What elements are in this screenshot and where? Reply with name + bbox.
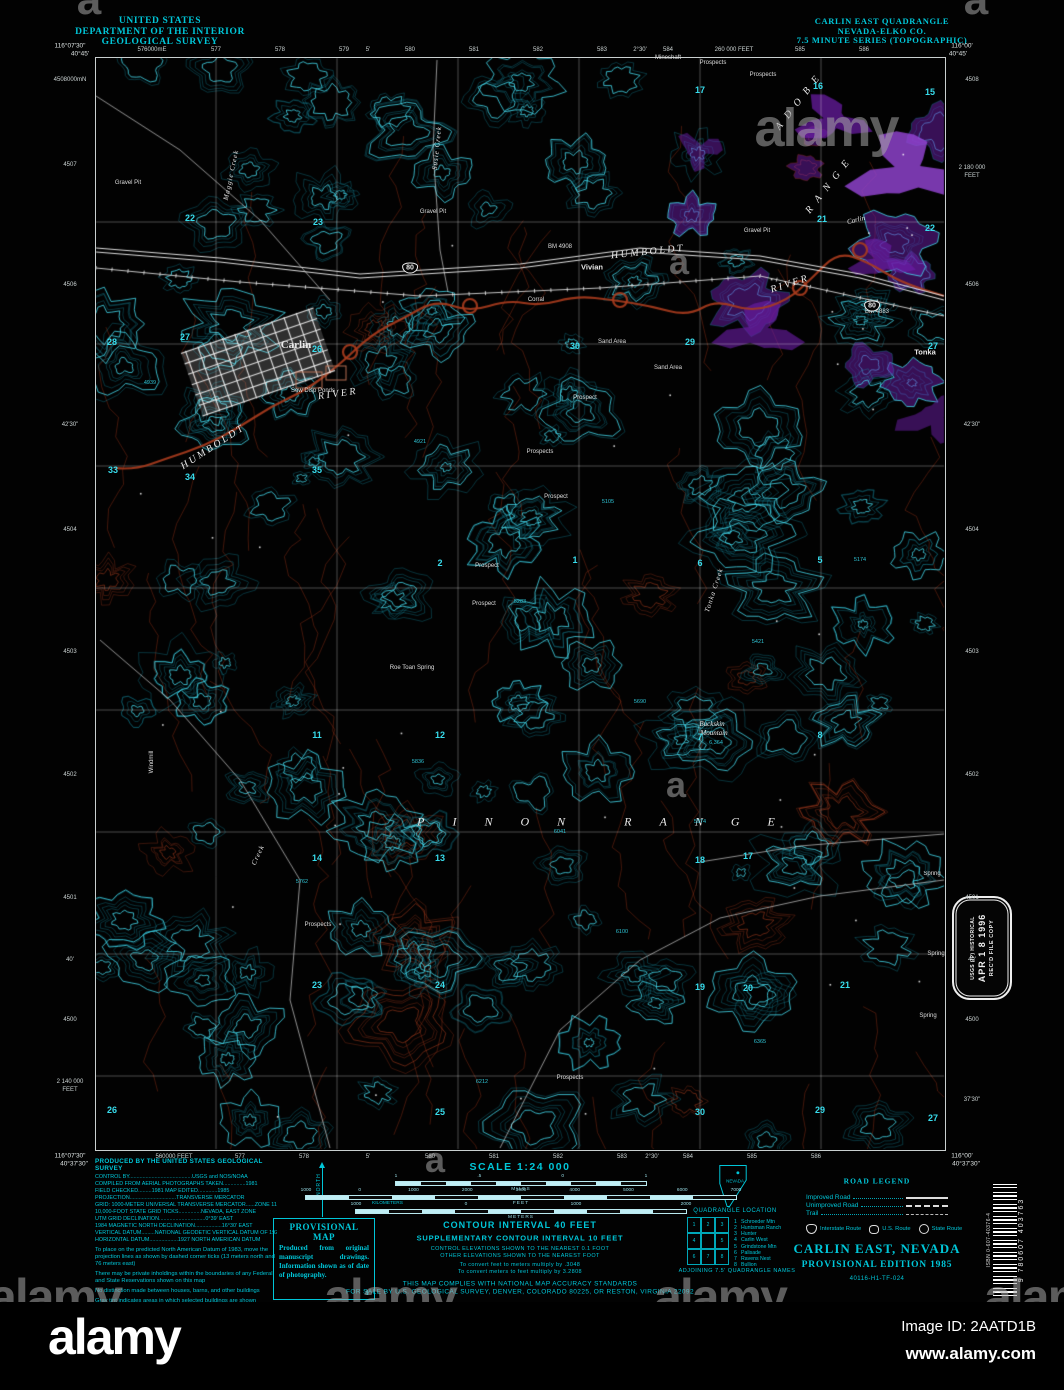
map-label-small: Windmill — [149, 751, 155, 774]
scale-bar-tick: 5000 — [623, 1188, 634, 1193]
edge-tick-left: 4508000mN — [54, 77, 87, 83]
map-label-num: 1 — [572, 555, 577, 565]
map-label-small: Spring — [927, 951, 944, 957]
road-legend-label: Unimproved Road — [806, 1202, 858, 1209]
corner-coordinate: 116°07'30" — [55, 1153, 86, 1160]
map-label-num: 26 — [312, 344, 322, 354]
edge-tick-left: 42'30" — [62, 422, 79, 428]
map-label-num: 29 — [815, 1105, 825, 1115]
map-label-small: Prospects — [305, 922, 332, 928]
map-label-feature: Mountain — [700, 729, 727, 737]
corner-coordinate: 40°45' — [71, 51, 89, 58]
map-label-num: 5 — [817, 555, 822, 565]
edge-tick-bottom: 584 — [683, 1154, 693, 1160]
interstate-route-icon — [806, 1224, 817, 1234]
road-legend-leader — [821, 1213, 903, 1215]
map-label-num: 18 — [695, 855, 705, 865]
scale-bar-tick: 6000 — [677, 1188, 688, 1193]
route-label: Interstate Route — [820, 1226, 861, 1232]
corner-coordinate: 116°07'30" — [55, 43, 86, 50]
edge-tick-left: 4506 — [63, 282, 76, 288]
quadrangle-location-caption: QUADRANGLE LOCATION — [693, 1208, 776, 1214]
road-sample-dashed — [906, 1205, 948, 1207]
header-left-line1: UNITED STATES — [75, 16, 245, 27]
route-item: U.S. Route — [869, 1224, 910, 1234]
map-label-town: Carlin — [281, 339, 312, 351]
map-label-small: Prospect — [544, 494, 568, 500]
map-label-num: 23 — [313, 217, 323, 227]
adjoining-cell: 4 — [687, 1233, 701, 1249]
map-label-small: Sand Area — [598, 339, 626, 345]
edge-tick-left: 40' — [66, 957, 74, 963]
map-label-num: 28 — [107, 337, 117, 347]
production-credits: PRODUCED BY THE UNITED STATES GEOLOGICAL… — [95, 1158, 277, 1305]
edge-tick-left: 4501 — [63, 895, 76, 901]
map-label-elev: 5174 — [854, 557, 866, 563]
scale-bar-tick: 1000 — [301, 1188, 312, 1193]
map-label-elev: 5690 — [634, 699, 646, 705]
north-arrow-label: NORTH — [316, 1173, 322, 1196]
header-right: CARLIN EAST QUADRANGLE NEVADA-ELKO CO. 7… — [797, 17, 968, 46]
kilometers-label: KILOMETERS — [372, 1201, 403, 1206]
map-label-num: 34 — [185, 472, 195, 482]
header-left-line2: DEPARTMENT OF THE INTERIOR — [75, 27, 245, 38]
map-label-num: 11 — [312, 730, 322, 740]
credit-paragraph: No distinction made between houses, barn… — [95, 1288, 277, 1295]
stamp-line1: USGS (IP) HISTORICAL — [970, 916, 976, 979]
edge-tick-top: 5' — [366, 47, 370, 53]
map-label-small: Prospect — [472, 601, 496, 607]
map-label-num: 27 — [180, 332, 190, 342]
corner-coordinate: 116°00' — [951, 43, 972, 50]
edge-tick-bottom: 582 — [553, 1154, 563, 1160]
adjoining-cell: 3 — [715, 1217, 729, 1233]
edge-tick-bottom: 560000 FEET — [155, 1154, 192, 1160]
scale-bar-unit: FEET — [513, 1201, 529, 1206]
map-label-num: 23 — [312, 980, 322, 990]
credit-line: HORIZONTAL DATUM...................1927 … — [95, 1237, 277, 1244]
map-code: 40116-H1-TF-024 — [850, 1276, 905, 1282]
alamy-logo: alamy — [48, 1308, 180, 1366]
map-label-elev: 6041 — [554, 829, 566, 835]
edge-tick-left: 2 140 000 — [57, 1079, 84, 1085]
map-label-num: 24 — [435, 980, 445, 990]
route-markers: Interstate RouteU.S. RouteState Route — [806, 1224, 962, 1234]
edge-tick-top: 576000mE — [137, 47, 166, 53]
edge-tick-bottom: 583 — [617, 1154, 627, 1160]
scale-bar-tick: 2000 — [681, 1202, 692, 1207]
nevada-label: NEVADA — [726, 1179, 744, 1184]
edge-tick-right: 4502 — [965, 772, 978, 778]
map-label-num: 26 — [107, 1105, 117, 1115]
map-label-small: Roe Toan Spring — [390, 665, 435, 671]
map-label-elev: 6,364 — [709, 740, 723, 746]
edge-tick-right: 4504 — [965, 527, 978, 533]
map-label-small: Prospects — [557, 1075, 584, 1081]
map-label-num: 20 — [743, 983, 753, 993]
edge-tick-top: 585 — [795, 47, 805, 53]
credit-line: VERTICAL DATUM.........NATIONAL GEODETIC… — [95, 1230, 277, 1237]
map-label-elev: 6212 — [476, 1079, 488, 1085]
map-label-small: Prospects — [750, 72, 777, 78]
map-label-elev: 5421 — [752, 639, 764, 645]
alamy-watermark: a — [425, 1139, 443, 1181]
map-label-elev: 6100 — [616, 929, 628, 935]
provisional-title: PROVISIONAL MAP — [279, 1222, 369, 1242]
road-legend-leader — [861, 1205, 903, 1207]
alamy-watermark: a — [964, 0, 986, 25]
edge-tick-bottom: 577 — [235, 1154, 245, 1160]
credit-paragraph: There may be private inholdings within t… — [95, 1271, 277, 1285]
supplementary-contour: SUPPLEMENTARY CONTOUR INTERVAL 10 FEET — [417, 1234, 624, 1243]
map-label-elev: 5283 — [514, 599, 526, 605]
map-label-num: 2 — [437, 558, 442, 568]
map-label-num: 7 — [697, 732, 702, 742]
edge-tick-top: 584 — [663, 47, 673, 53]
map-label-num: 13 — [435, 853, 445, 863]
adjoining-name: 5Grindstone Mtn — [734, 1244, 781, 1250]
edge-tick-left: 4502 — [63, 772, 76, 778]
scale-bar-unit: METERS — [508, 1215, 534, 1220]
credits-title: PRODUCED BY THE UNITED STATES GEOLOGICAL… — [95, 1158, 277, 1172]
scale-note: To convert feet to meters multiply by .3… — [460, 1262, 581, 1268]
adjoining-cell: 8 — [715, 1249, 729, 1265]
road-legend-label: Trail — [806, 1210, 818, 1217]
road-legend-label: Improved Road — [806, 1194, 850, 1201]
edge-tick-top: 578 — [275, 47, 285, 53]
credits-lines: CONTROL BY..............................… — [95, 1174, 277, 1244]
map-label-range: PINON RANGE — [417, 815, 803, 830]
header-left: UNITED STATES DEPARTMENT OF THE INTERIOR… — [75, 16, 245, 48]
north-arrow-line — [322, 1167, 323, 1217]
road-legend-title: ROAD LEGEND — [844, 1177, 911, 1186]
scale-title: SCALE 1:24 000 — [470, 1161, 571, 1173]
route-item: Interstate Route — [806, 1224, 861, 1234]
map-label-num: 29 — [685, 337, 695, 347]
adjoining-cell — [701, 1233, 715, 1249]
map-label-small: Gravel Pit — [420, 209, 446, 215]
edge-tick-left: FEET — [62, 1087, 77, 1093]
map-label-small: Mineshaft — [655, 55, 681, 61]
isbn-text: ISBN 0-607-40376-4 — [986, 1213, 992, 1268]
corner-coordinate: 116°00' — [951, 1153, 972, 1160]
adjoining-names: 1Schroeder Mtn2Huntsman Ranch3Hunter4Car… — [734, 1219, 781, 1268]
map-label-num: 27 — [928, 1113, 938, 1123]
credit-line: GRID: 1000-METER UNIVERSAL TRANSVERSE ME… — [95, 1202, 277, 1209]
scale-bar-tick: 0 — [358, 1188, 361, 1193]
alamy-watermark: alamy — [754, 97, 897, 159]
map-label-num: 15 — [925, 87, 935, 97]
edge-tick-bottom: 578 — [299, 1154, 309, 1160]
map-label-num: 30 — [695, 1107, 705, 1117]
road-legend-row: Trail — [806, 1210, 948, 1217]
scale-bar-tick: 1000 — [408, 1188, 419, 1193]
map-label-elev: 5974 — [694, 819, 706, 825]
adjoining-cell: 2 — [701, 1217, 715, 1233]
edge-tick-right: 37'30" — [964, 1097, 981, 1103]
map-label-num: 16 — [813, 81, 823, 91]
map-label-num: 17 — [695, 85, 705, 95]
map-label-elev: 5836 — [412, 759, 424, 765]
edge-tick-top: 579 — [339, 47, 349, 53]
edge-tick-right: FEET — [964, 173, 979, 179]
credit-line: CONTROL BY..............................… — [95, 1174, 277, 1181]
map-label-num: 35 — [312, 465, 322, 475]
map-label-num: 30 — [570, 341, 580, 351]
map-label-num: 25 — [435, 1107, 445, 1117]
alamy-watermark: a — [669, 241, 687, 283]
alamy-watermark: a — [666, 764, 684, 806]
adjoining-cell: 7 — [701, 1249, 715, 1265]
map-label-num: 21 — [817, 214, 827, 224]
map-label-small: Spring — [919, 1013, 936, 1019]
credit-line: 10,000-FOOT STATE GRID TICKS............… — [95, 1209, 277, 1216]
scale-note: OTHER ELEVATIONS SHOWN TO THE NEAREST FO… — [440, 1253, 600, 1259]
credit-paragraph: To place on the predicted North American… — [95, 1247, 277, 1269]
road-legend-leader — [853, 1197, 903, 1199]
scale-bar-tick: 7000 — [731, 1188, 742, 1193]
road-legend-row: Unimproved Road — [806, 1202, 948, 1209]
scale-bar-tick: 1 — [395, 1174, 398, 1179]
scale-bar-tick: 3000 — [516, 1188, 527, 1193]
nevada-outline: NEVADA — [714, 1164, 752, 1208]
scale-bar-tick: .5 — [477, 1174, 481, 1179]
map-label-num: 22 — [925, 223, 935, 233]
edge-tick-top: 586 — [859, 47, 869, 53]
map-label-small: Sand Area — [654, 365, 682, 371]
edge-tick-left: 4507 — [63, 162, 76, 168]
edge-tick-bottom: 585 — [747, 1154, 757, 1160]
scale-bar: 100001000200030004000500060007000FEET — [305, 1195, 737, 1200]
corner-coordinate: 40°45' — [949, 51, 967, 58]
scale-bar-tick: 1000 — [351, 1202, 362, 1207]
credits-paragraphs: To place on the predicted North American… — [95, 1247, 277, 1305]
map-label-num: 17 — [743, 851, 753, 861]
road-sample-trail — [906, 1214, 948, 1215]
state-route-icon — [919, 1224, 929, 1234]
scale-bar-tick: 1000 — [571, 1202, 582, 1207]
edge-tick-top: 260 000 FEET — [715, 47, 754, 53]
scale-note: To convert meters to feet multiply by 3.… — [458, 1269, 582, 1275]
scale-bar: 1000010002000METERS — [355, 1209, 687, 1214]
adjoining-cell: 1 — [687, 1217, 701, 1233]
map-label-elev: 4921 — [414, 439, 426, 445]
edge-tick-bottom: 2°30' — [645, 1154, 659, 1160]
map-label-small: Prospects — [527, 449, 554, 455]
map-label-num: 14 — [312, 853, 322, 863]
edge-tick-right: 4503 — [965, 649, 978, 655]
stamp-line3: REC'D FILE COPY — [989, 920, 995, 976]
route-label: State Route — [932, 1226, 963, 1232]
edge-tick-left: 4500 — [63, 1017, 76, 1023]
map-label-small: Gravel Pit — [744, 228, 770, 234]
map-label-num: 8 — [817, 730, 822, 740]
edge-tick-bottom: 5' — [366, 1154, 370, 1160]
map-label-small: BM 4908 — [548, 244, 572, 250]
edge-tick-top: 2°30' — [633, 47, 647, 53]
map-label-elev: 5762 — [296, 879, 308, 885]
map-label-num: 27 — [928, 341, 938, 351]
us-route-icon — [869, 1225, 879, 1234]
map-label-elev: 6365 — [754, 1039, 766, 1045]
map-label-small: Prospect — [573, 395, 597, 401]
credit-line: PROJECTION..............................… — [95, 1195, 277, 1202]
quad-location-dot — [736, 1171, 739, 1174]
edge-tick-bottom: 581 — [489, 1154, 499, 1160]
map-label-small: Prospects — [700, 60, 727, 66]
edge-tick-top: 581 — [469, 47, 479, 53]
map-label-num: 12 — [435, 730, 445, 740]
map-label-num: 22 — [185, 213, 195, 223]
map-label-small: Sew Disp Ponds — [291, 388, 335, 394]
route-item: State Route — [919, 1224, 963, 1234]
map-label-elev: 4939 — [144, 380, 156, 386]
edge-tick-top: 580 — [405, 47, 415, 53]
edge-tick-top: 583 — [597, 47, 607, 53]
map-label-small: Corral — [528, 297, 544, 303]
edge-tick-left: 4503 — [63, 649, 76, 655]
map-label-small: Prospect — [475, 563, 499, 569]
quadrangle-series: 7.5 MINUTE SERIES (TOPOGRAPHIC) — [797, 36, 968, 46]
scale-bar: 1.501MILES — [395, 1181, 647, 1186]
map-label-place: Vivian — [581, 263, 603, 272]
edge-tick-right: 42'30" — [964, 422, 981, 428]
adjoining-cell: 6 — [687, 1249, 701, 1265]
adjoining-cell: 5 — [715, 1233, 729, 1249]
map-label-num: 6 — [697, 558, 702, 568]
credit-line: 1984 MAGNETIC NORTH DECLINATION.........… — [95, 1223, 277, 1230]
map-label-num: 19 — [695, 982, 705, 992]
road-sample-solid — [906, 1197, 948, 1199]
scale-bar-tick: 0 — [561, 1174, 564, 1179]
map-sheet: UNITED STATES DEPARTMENT OF THE INTERIOR… — [0, 0, 1064, 1390]
edge-tick-bottom: 586 — [811, 1154, 821, 1160]
edge-tick-right: 40' — [968, 957, 976, 963]
map-label-small: Spring — [923, 871, 940, 877]
alamy-bottom-bar: alamy Image ID: 2AATD1B www.alamy.com — [0, 1302, 1064, 1390]
adjoining-grid: 12345678 — [687, 1217, 729, 1265]
edge-tick-top: 582 — [533, 47, 543, 53]
edge-tick-right: 4500 — [965, 1017, 978, 1023]
edge-tick-top: 577 — [211, 47, 221, 53]
map-title: CARLIN EAST, NEVADA — [794, 1241, 961, 1257]
map-label-feature: Buckskin — [699, 720, 724, 728]
route-label: U.S. Route — [882, 1226, 910, 1232]
edge-tick-right: 2 180 000 — [959, 165, 986, 171]
scale-bar-tick: 4000 — [569, 1188, 580, 1193]
credit-line: COMPILED FROM AERIAL PHOTOGRAPHS TAKEN..… — [95, 1181, 277, 1188]
road-legend-row: Improved Road — [806, 1194, 948, 1201]
map-label-small: Gravel Pit — [115, 180, 141, 186]
corner-coordinate: 40°37'30" — [60, 1161, 88, 1168]
map-label-elev: 5105 — [602, 499, 614, 505]
edge-tick-right: 4508 — [965, 77, 978, 83]
map-edition: PROVISIONAL EDITION 1985 — [802, 1260, 953, 1270]
edge-tick-left: 4504 — [63, 527, 76, 533]
map-label-num: 33 — [108, 465, 118, 475]
contour-interval: CONTOUR INTERVAL 40 FEET — [443, 1220, 597, 1230]
alamy-watermark: a — [77, 0, 99, 25]
alamy-url: www.alamy.com — [906, 1344, 1036, 1364]
stamp-date: APR 1 8 1996 — [977, 914, 987, 983]
scale-note: CONTROL ELEVATIONS SHOWN TO THE NEAREST … — [431, 1246, 610, 1252]
corner-coordinate: 40°37'30" — [952, 1161, 980, 1168]
image-id-text: Image ID: 2AATD1B — [901, 1318, 1036, 1335]
map-label-num: 21 — [840, 980, 850, 990]
credit-line: UTM GRID DECLINATION....................… — [95, 1216, 277, 1223]
received-stamp: USGS (IP) HISTORICAL APR 1 8 1996 REC'D … — [952, 896, 1012, 1000]
credit-line: FIELD CHECKED.........1981 MAP EDITED...… — [95, 1188, 277, 1195]
scale-bar-tick: 2000 — [462, 1188, 473, 1193]
scale-bar-tick: 0 — [465, 1202, 468, 1207]
edge-tick-right: 4501 — [965, 895, 978, 901]
edge-tick-right: 4506 — [965, 282, 978, 288]
scale-bar-tick: 1 — [645, 1174, 648, 1179]
